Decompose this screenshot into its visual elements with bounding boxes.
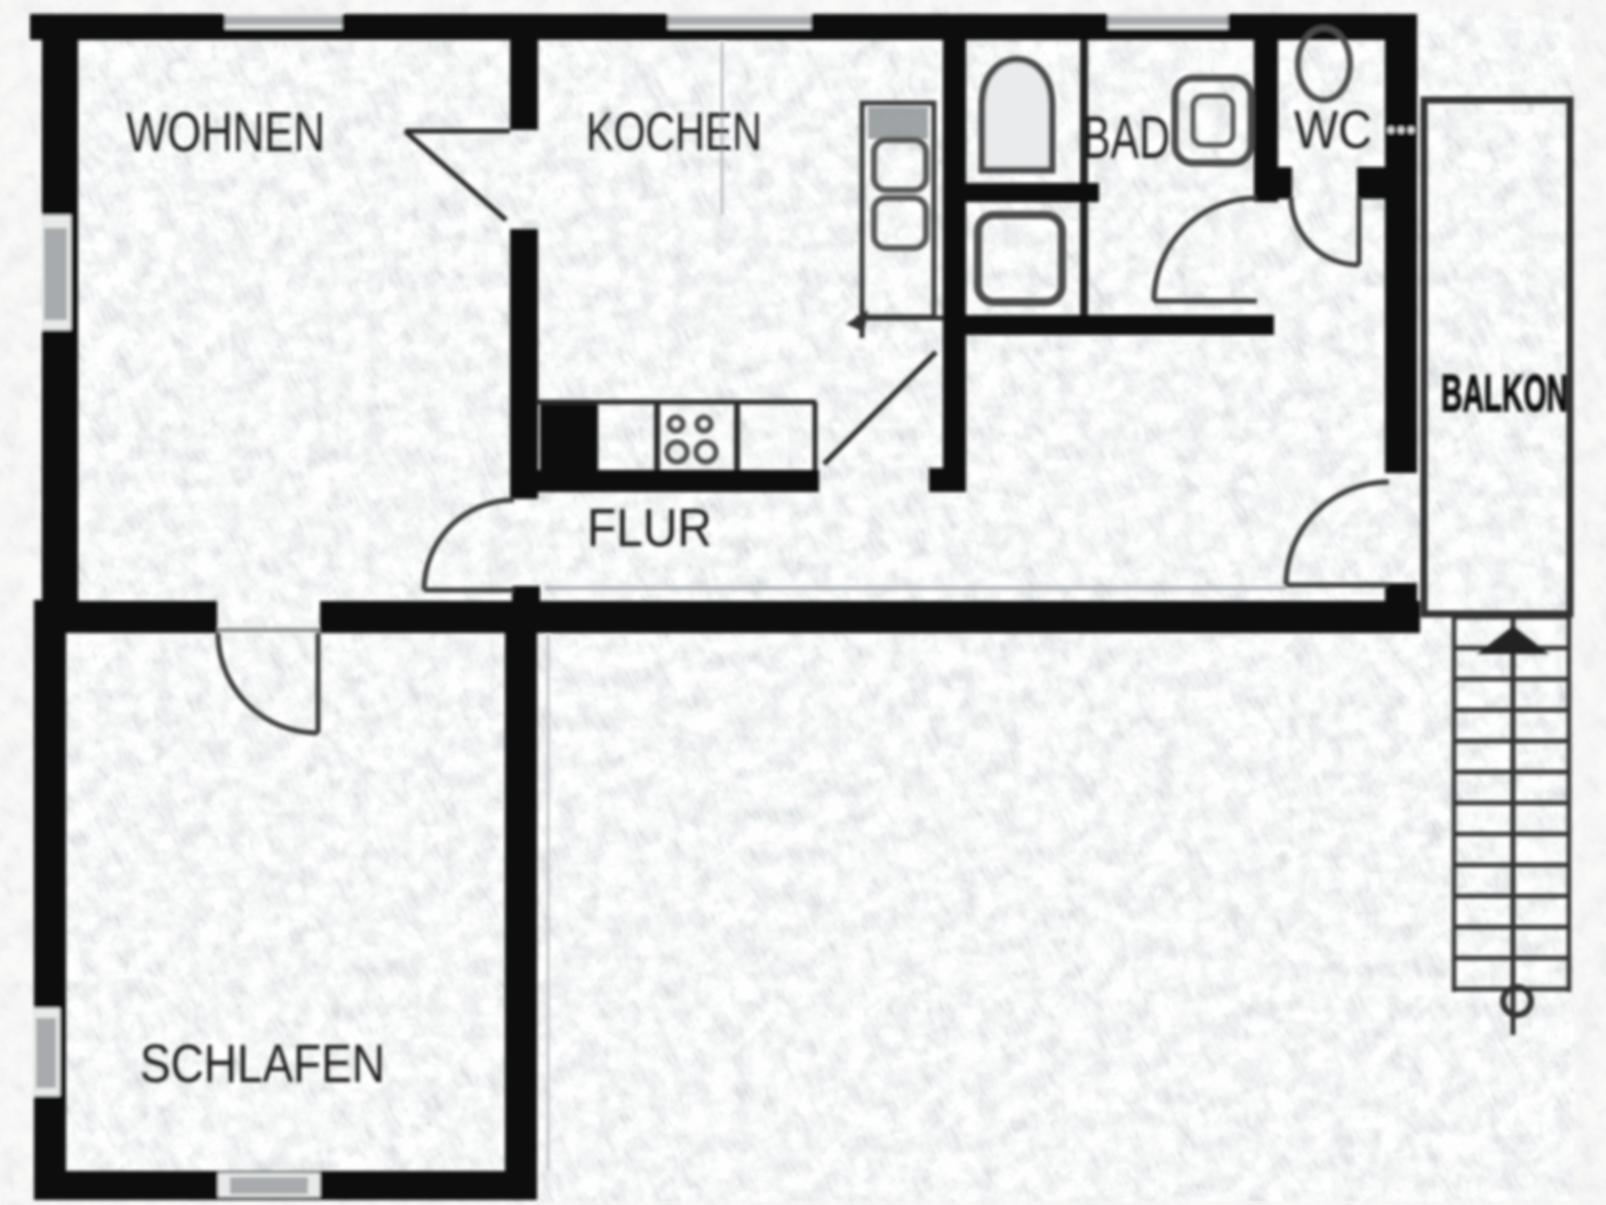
svg-text:WC: WC xyxy=(1294,100,1372,160)
svg-text:BAD: BAD xyxy=(1082,104,1170,171)
svg-text:BALKON: BALKON xyxy=(1441,365,1568,423)
svg-text:SCHLAFEN: SCHLAFEN xyxy=(140,1034,385,1094)
svg-text:WOHNEN: WOHNEN xyxy=(126,100,325,163)
svg-text:KOCHEN: KOCHEN xyxy=(586,102,762,162)
svg-text:FLUR: FLUR xyxy=(587,498,712,558)
